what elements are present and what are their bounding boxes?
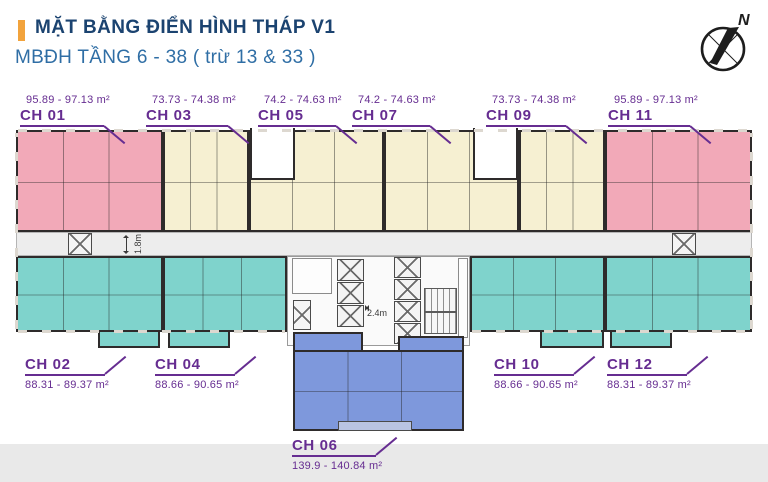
unit-label-ch05: 74.2 - 74.63 m² CH 05 [258, 94, 336, 127]
unit-name: CH 12 [607, 356, 687, 376]
unit-ch06-block [293, 350, 464, 431]
unit-area: 88.66 - 90.65 m² [494, 379, 574, 391]
service-room-right [458, 258, 468, 338]
floor-plan: 1.8m 2.4m [0, 0, 768, 482]
unit-ch06-balcony [338, 421, 412, 431]
elevator-icon [394, 301, 421, 322]
corridor-dimension-text: 1.8m [133, 234, 143, 254]
unit-name: CH 04 [155, 356, 235, 376]
service-room-left [292, 258, 332, 294]
unit-area: 95.89 - 97.13 m² [614, 94, 690, 106]
unit-name: CH 02 [25, 356, 105, 376]
lobby-dimension-text: 2.4m [367, 308, 387, 318]
unit-area: 74.2 - 74.63 m² [358, 94, 430, 106]
unit-name: CH 11 [608, 107, 690, 127]
unit-ch12-block [605, 256, 752, 332]
shaft-box-right [672, 233, 696, 255]
unit-name: CH 01 [20, 107, 104, 127]
unit-area: 73.73 - 74.38 m² [492, 94, 566, 106]
unit-ch04-block [163, 256, 287, 332]
elevator-icon [394, 257, 421, 278]
windows-bottom-left [18, 330, 285, 333]
unit-area: 73.73 - 74.38 m² [152, 94, 228, 106]
floor-plan-page: MẶT BẰNG ĐIỂN HÌNH THÁP V1 MBĐH TẦNG 6 -… [0, 0, 768, 482]
unit-name: CH 05 [258, 107, 336, 127]
unit-label-ch02: CH 02 88.31 - 89.37 m² [25, 356, 105, 391]
shaft-box-core [293, 300, 311, 330]
windows-right [750, 133, 753, 329]
windows-bottom-right [472, 330, 750, 333]
unit-ch01-block [16, 130, 163, 232]
unit-area: 88.31 - 89.37 m² [607, 379, 687, 391]
unit-label-ch07: 74.2 - 74.63 m² CH 07 [352, 94, 430, 127]
staircase-icon [424, 288, 457, 334]
unit-label-ch01: 95.89 - 97.13 m² CH 01 [20, 94, 104, 127]
lobby-dimension: 2.4m [360, 308, 394, 318]
unit-name: CH 09 [486, 107, 566, 127]
unit-area: 88.66 - 90.65 m² [155, 379, 235, 391]
unit-name: CH 07 [352, 107, 430, 127]
vertical-arrow-icon [126, 236, 127, 253]
unit-ch10-block [470, 256, 605, 332]
unit-ch09-block [519, 130, 605, 232]
elevator-icon [337, 282, 364, 304]
unit-area: 139.9 - 140.84 m² [292, 460, 376, 472]
corridor-dimension: 1.8m [126, 233, 148, 255]
unit-area: 95.89 - 97.13 m² [26, 94, 104, 106]
elevator-icon [337, 259, 364, 281]
unit-ch11-block [605, 130, 752, 232]
unit-label-ch11: 95.89 - 97.13 m² CH 11 [608, 94, 690, 127]
elevator-icon [394, 279, 421, 300]
unit-name: CH 03 [146, 107, 228, 127]
unit-label-ch10: CH 10 88.66 - 90.65 m² [494, 356, 574, 391]
unit-ch02-block [16, 256, 163, 332]
unit-label-ch03: 73.73 - 74.38 m² CH 03 [146, 94, 228, 127]
shaft-box-left [68, 233, 92, 255]
unit-area: 88.31 - 89.37 m² [25, 379, 105, 391]
unit-label-ch06: CH 06 139.9 - 140.84 m² [292, 437, 376, 472]
unit-name: CH 06 [292, 437, 376, 457]
facade-notch-right [473, 128, 518, 180]
unit-area: 74.2 - 74.63 m² [264, 94, 336, 106]
unit-name: CH 10 [494, 356, 574, 376]
unit-label-ch09: 73.73 - 74.38 m² CH 09 [486, 94, 566, 127]
windows-left [15, 133, 18, 329]
windows-top [18, 129, 750, 132]
unit-ch03-block [163, 130, 249, 232]
unit-label-ch04: CH 04 88.66 - 90.65 m² [155, 356, 235, 391]
unit-label-ch12: CH 12 88.31 - 89.37 m² [607, 356, 687, 391]
facade-notch-left [250, 128, 295, 180]
